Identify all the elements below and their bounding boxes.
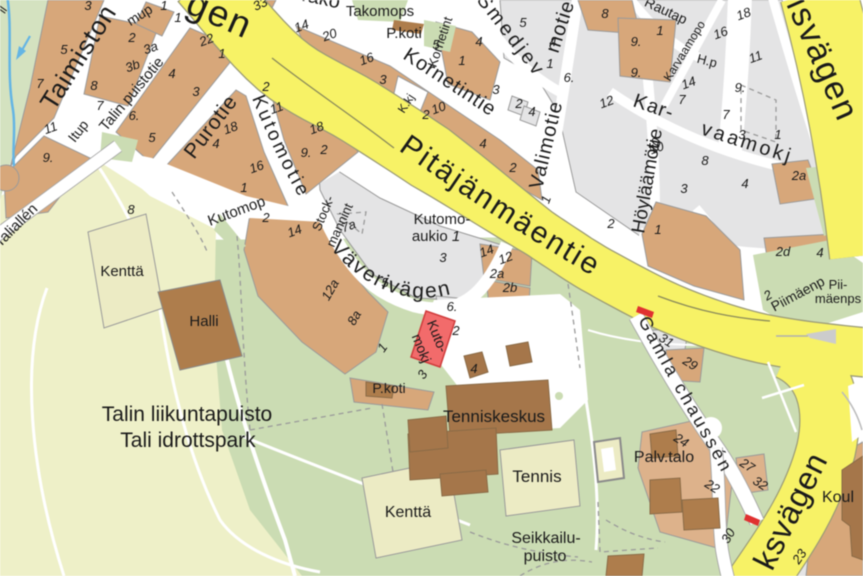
svg-text:7: 7 (722, 107, 730, 122)
svg-text:8: 8 (90, 78, 98, 93)
svg-text:Tennis: Tennis (512, 467, 561, 486)
svg-text:5: 5 (432, 37, 440, 52)
svg-text:7: 7 (678, 92, 686, 107)
svg-text:4: 4 (168, 66, 175, 81)
svg-text:2b: 2b (502, 280, 517, 295)
svg-text:3: 3 (439, 250, 447, 265)
svg-text:2: 2 (606, 216, 615, 231)
svg-text:8: 8 (701, 153, 709, 168)
svg-text:6.: 6. (129, 108, 140, 123)
svg-text:4: 4 (741, 176, 748, 191)
svg-text:Tenniskeskus: Tenniskeskus (443, 407, 545, 426)
svg-text:4: 4 (549, 34, 556, 49)
svg-text:9.: 9. (631, 65, 642, 80)
svg-text:Takomops: Takomops (346, 3, 414, 20)
svg-text:4: 4 (479, 136, 486, 151)
svg-text:Koul: Koul (822, 489, 854, 506)
svg-text:2: 2 (514, 96, 523, 111)
svg-text:9.: 9. (631, 34, 642, 49)
svg-text:P.koti: P.koti (386, 25, 422, 42)
svg-text:Kutomo-: Kutomo- (414, 211, 471, 228)
svg-text:3: 3 (492, 82, 500, 97)
svg-text:1: 1 (240, 180, 247, 195)
svg-text:5: 5 (148, 130, 156, 145)
svg-text:3: 3 (84, 0, 92, 13)
svg-text:9.: 9. (735, 80, 746, 95)
svg-text:4: 4 (475, 34, 482, 49)
svg-text:1: 1 (160, 0, 167, 13)
svg-text:Pii-: Pii- (829, 277, 848, 292)
svg-text:1: 1 (654, 222, 661, 237)
svg-text:mäenps: mäenps (815, 291, 862, 306)
svg-text:9.: 9. (301, 145, 312, 160)
svg-text:1: 1 (546, 56, 553, 71)
svg-text:7: 7 (96, 98, 104, 113)
svg-text:2: 2 (261, 79, 270, 94)
svg-text:6.: 6. (564, 70, 575, 85)
svg-text:5: 5 (519, 15, 527, 30)
svg-text:1: 1 (656, 23, 663, 38)
svg-text:P.koti: P.koti (372, 380, 405, 396)
svg-text:2d: 2d (775, 244, 791, 259)
svg-text:3: 3 (379, 72, 387, 87)
svg-text:1: 1 (774, 127, 781, 142)
svg-text:Talin liikuntapuisto: Talin liikuntapuisto (102, 403, 272, 426)
svg-text:3: 3 (192, 84, 200, 99)
svg-text:3: 3 (680, 181, 688, 196)
svg-text:2a: 2a (791, 168, 806, 183)
svg-text:2a: 2a (489, 266, 504, 281)
svg-text:1: 1 (458, 53, 465, 68)
svg-text:Kenttä: Kenttä (100, 263, 144, 280)
svg-text:8: 8 (127, 202, 135, 217)
svg-text:4: 4 (470, 361, 477, 376)
svg-text:Tali idrottspark: Tali idrottspark (120, 429, 256, 452)
svg-text:3: 3 (738, 127, 746, 142)
svg-text:5: 5 (60, 42, 68, 57)
svg-text:5: 5 (381, 275, 389, 290)
svg-text:2: 2 (319, 142, 328, 157)
svg-text:4: 4 (212, 136, 219, 151)
svg-text:6.: 6. (447, 299, 458, 314)
svg-text:Kenttä: Kenttä (385, 504, 431, 521)
svg-text:4: 4 (528, 104, 535, 119)
svg-text:4: 4 (816, 245, 823, 260)
svg-text:2: 2 (451, 323, 460, 338)
svg-text:2: 2 (508, 160, 517, 175)
svg-text:aukio 1: aukio 1 (412, 228, 460, 245)
svg-text:Halli: Halli (189, 313, 218, 330)
svg-text:Seikkailu-: Seikkailu- (511, 530, 580, 547)
svg-text:7: 7 (36, 76, 44, 91)
svg-text:2: 2 (261, 210, 270, 225)
svg-text:1: 1 (174, 10, 181, 25)
svg-text:Palv.talo: Palv.talo (634, 449, 694, 466)
svg-text:puisto: puisto (524, 548, 567, 565)
svg-text:2: 2 (421, 107, 430, 122)
svg-text:1: 1 (218, 46, 225, 61)
svg-text:2: 2 (127, 30, 136, 45)
svg-text:9.: 9. (43, 150, 54, 165)
svg-text:8: 8 (601, 6, 609, 21)
